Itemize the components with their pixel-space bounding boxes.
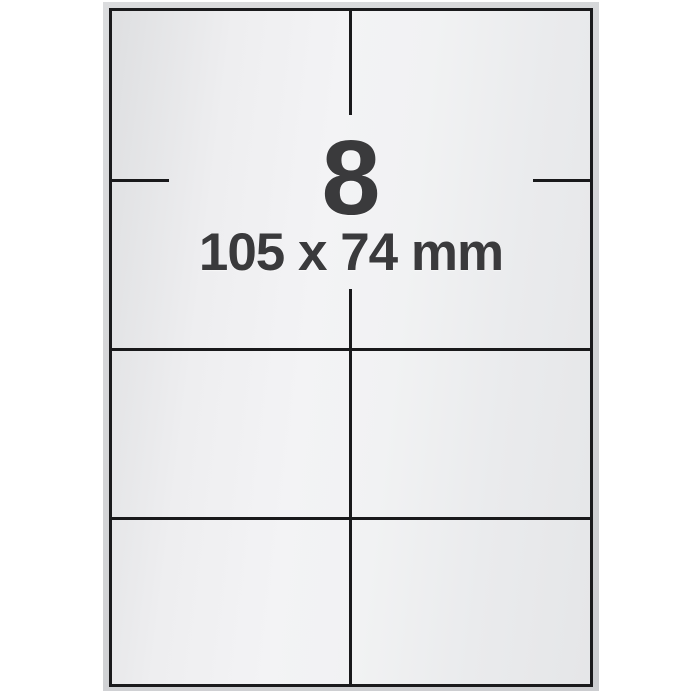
label-grid: 8 105 x 74 mm	[112, 11, 590, 684]
sheet-edge: 8 105 x 74 mm	[103, 2, 599, 691]
row-divider-lower	[112, 517, 590, 520]
label-sheet: 8 105 x 74 mm	[109, 8, 593, 687]
label-sheet-product-image: 8 105 x 74 mm	[0, 0, 700, 700]
label-dimensions-text: 105 x 74 mm	[112, 222, 590, 282]
row-divider-middle	[112, 348, 590, 351]
column-divider-top-segment	[349, 11, 352, 115]
label-count-text: 8	[112, 118, 590, 238]
